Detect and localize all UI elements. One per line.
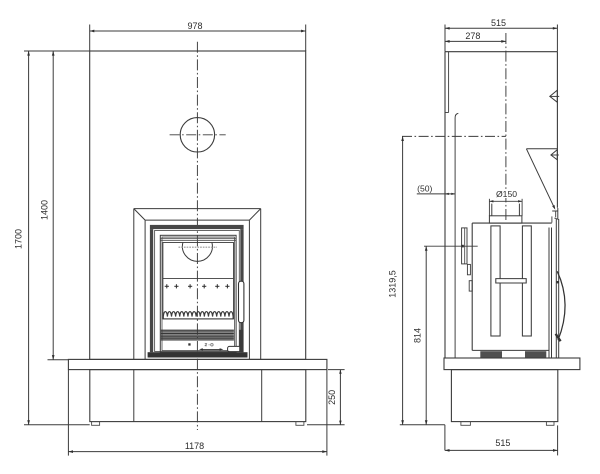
svg-text:515: 515 [495, 438, 510, 448]
svg-text:1319,5: 1319,5 [387, 270, 397, 298]
svg-text:Ø150: Ø150 [496, 189, 517, 199]
svg-text:(50): (50) [417, 183, 432, 193]
svg-text:250: 250 [327, 390, 337, 405]
svg-text:1400: 1400 [39, 200, 49, 220]
svg-text:814: 814 [413, 328, 423, 343]
svg-text:1178: 1178 [185, 441, 204, 451]
svg-text:278: 278 [465, 31, 480, 41]
svg-text:978: 978 [187, 21, 202, 31]
svg-text:1700: 1700 [14, 229, 24, 249]
svg-text:515: 515 [491, 18, 506, 28]
